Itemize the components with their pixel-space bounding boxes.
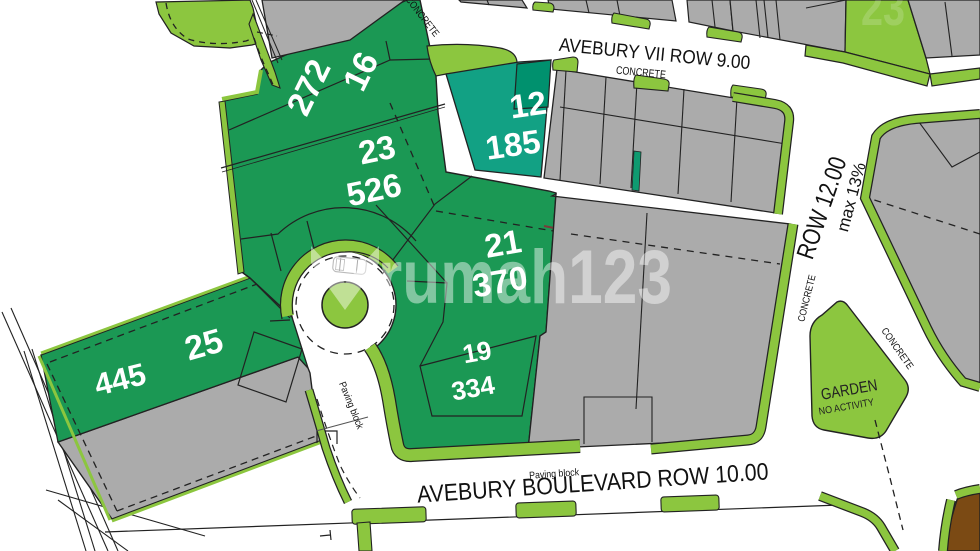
svg-text:rumah123: rumah123 <box>378 235 672 320</box>
svg-text:19: 19 <box>460 335 494 370</box>
svg-text:185: 185 <box>483 122 543 166</box>
svg-text:23: 23 <box>355 128 399 172</box>
svg-text:23: 23 <box>861 0 905 37</box>
svg-text:12: 12 <box>507 84 549 126</box>
